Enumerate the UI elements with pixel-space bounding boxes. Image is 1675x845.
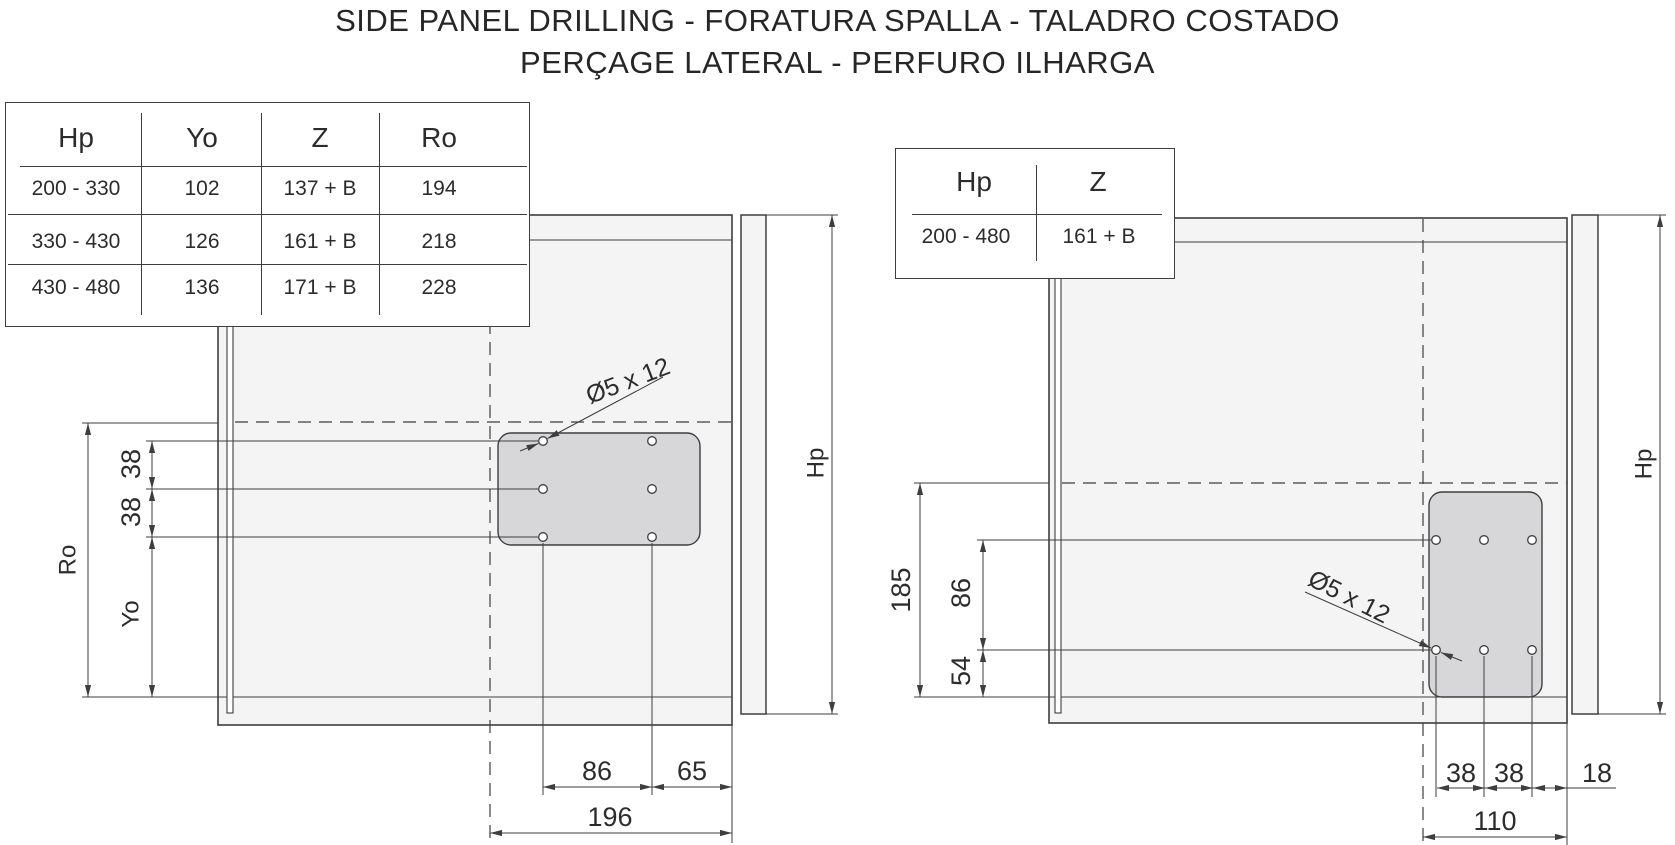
table-cell: 102 — [184, 177, 219, 201]
dim-86r-label: 86 — [946, 578, 976, 608]
table-row-divider — [8, 264, 527, 265]
dim-54-label: 54 — [946, 656, 976, 686]
dim-65-label: 65 — [677, 756, 707, 786]
table-row-divider — [8, 214, 527, 215]
table-row-divider — [912, 214, 1162, 215]
left-spec-table: Hp Yo Z Ro 200 - 330 102 137 + B 194 330… — [5, 102, 530, 327]
drill-hole — [1480, 646, 1489, 655]
drill-hole — [648, 485, 657, 494]
table-cell: 430 - 480 — [32, 276, 121, 300]
table-cell: 136 — [184, 276, 219, 300]
left-panel-edge-strip — [741, 215, 766, 714]
column-header: Z — [1089, 166, 1106, 198]
drill-hole — [648, 533, 657, 542]
table-column-divider — [1036, 165, 1037, 261]
column-header: Yo — [186, 122, 218, 154]
dim-38a-label: 38 — [116, 449, 146, 479]
table-cell: 194 — [421, 177, 456, 201]
table-cell: 161 + B — [284, 230, 357, 254]
table-cell: 161 + B — [1063, 225, 1136, 249]
right-drilling-plate — [1429, 492, 1542, 697]
drill-hole — [1528, 536, 1537, 545]
drill-hole — [1432, 536, 1441, 545]
drill-hole — [648, 437, 657, 446]
right-spec-table: Hp Z 200 - 480 161 + B — [895, 148, 1175, 279]
dim-86-label: 86 — [582, 756, 612, 786]
table-cell: 330 - 430 — [32, 230, 121, 254]
column-header: Ro — [421, 122, 457, 154]
drill-hole — [539, 485, 548, 494]
right-panel-edge-strip — [1572, 215, 1598, 714]
table-cell: 171 + B — [284, 276, 357, 300]
right-hp-dimension-label: Hp — [1631, 449, 1658, 480]
dim-196-label: 196 — [587, 802, 632, 832]
table-cell: 218 — [421, 230, 456, 254]
drill-hole — [539, 533, 548, 542]
left-hp-dimension-label: Hp — [803, 448, 830, 479]
yo-dimension-label: Yo — [118, 600, 145, 627]
dim-38ra-label: 38 — [1446, 758, 1476, 788]
table-cell: 137 + B — [284, 177, 357, 201]
drill-hole — [1528, 646, 1537, 655]
drill-hole — [1480, 536, 1489, 545]
drill-hole — [539, 437, 548, 446]
dim-18-label: 18 — [1582, 758, 1612, 788]
table-cell: 200 - 480 — [922, 225, 1011, 249]
drawing-sheet: SIDE PANEL DRILLING - FORATURA SPALLA - … — [0, 0, 1675, 845]
table-cell: 200 - 330 — [32, 177, 121, 201]
dim-185-label: 185 — [886, 567, 916, 612]
column-header: Hp — [956, 166, 992, 198]
dim-38b-label: 38 — [116, 497, 146, 527]
right-panel-edge-slot — [1055, 219, 1061, 713]
dim-38rb-label: 38 — [1494, 758, 1524, 788]
drill-hole — [1432, 646, 1441, 655]
dim-110-label: 110 — [1473, 806, 1516, 836]
table-cell: 228 — [421, 276, 456, 300]
table-cell: 126 — [184, 230, 219, 254]
column-header: Hp — [58, 122, 94, 154]
ro-dimension-label: Ro — [55, 545, 82, 576]
right-view: 185 86 54 Hp Ø5 x 12 38 38 18 110 — [886, 215, 1666, 845]
column-header: Z — [311, 122, 328, 154]
table-row-divider — [20, 166, 527, 167]
